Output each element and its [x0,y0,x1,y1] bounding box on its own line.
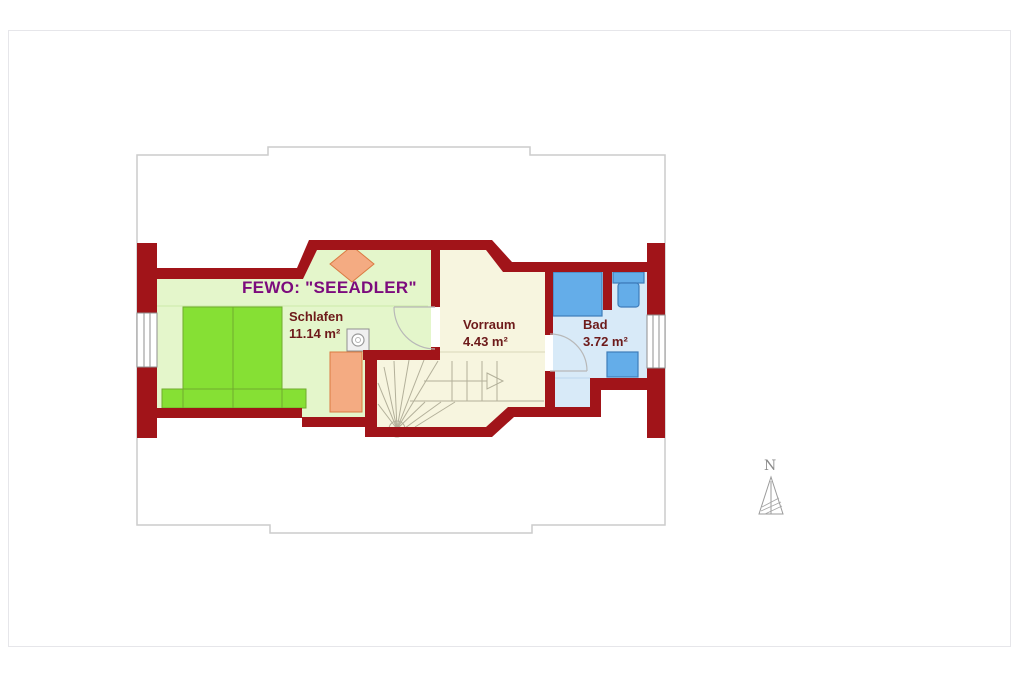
room-area: 3.72 m² [583,333,628,350]
room-name: Schlafen [289,308,343,325]
north-arrow-icon [759,477,783,514]
room-name: Bad [583,316,628,333]
room-name: Vorraum [463,316,516,333]
washing-machine-icon [347,329,369,351]
wardrobe [330,352,362,412]
exterior-wall-left-upper [137,243,157,313]
washbasin [607,352,638,377]
window-left [137,313,157,367]
north-label: N [764,458,776,474]
shower [553,272,602,316]
room-label-vorraum: Vorraum 4.43 m² [463,316,516,350]
exterior-wall-left-lower [137,367,157,438]
apartment-title: FEWO: "SEEADLER" [242,278,417,298]
exterior-wall-right-lower [647,368,665,438]
room-label-bad: Bad 3.72 m² [583,316,628,350]
floorplan-page: FEWO: "SEEADLER" Schlafen 11.14 m² Vorra… [0,0,1024,683]
window-right [647,315,665,368]
room-area: 11.14 m² [289,325,343,342]
room-label-schlafen: Schlafen 11.14 m² [289,308,343,342]
room-area: 4.43 m² [463,333,516,350]
exterior-wall-right-upper [647,243,665,315]
toilet [613,272,644,307]
